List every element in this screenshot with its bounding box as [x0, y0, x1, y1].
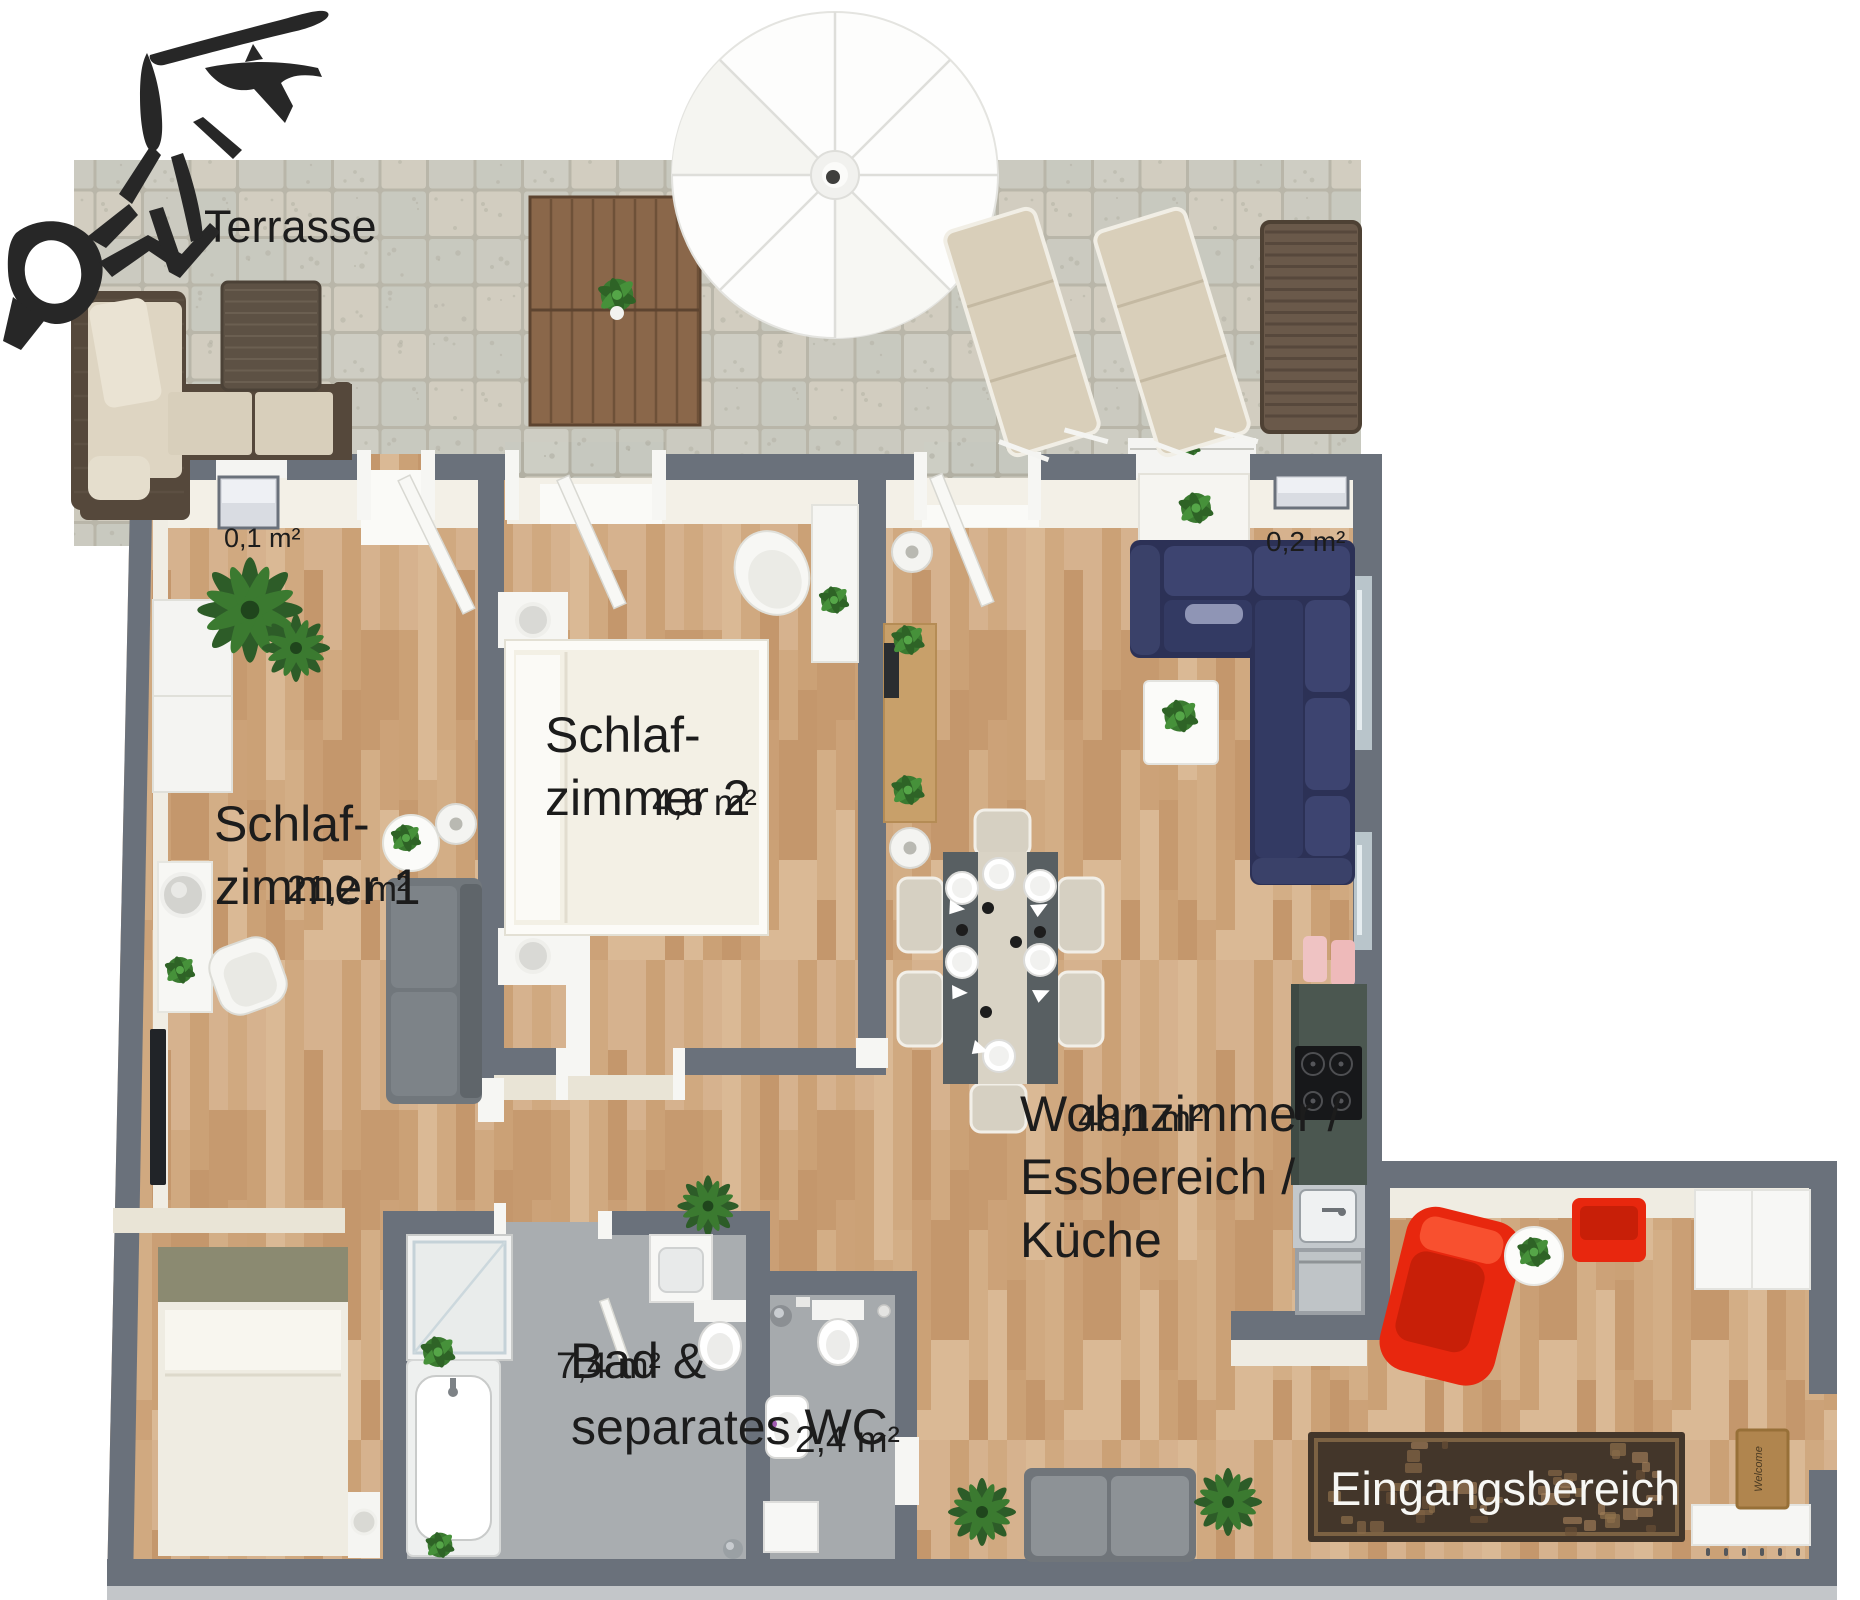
svg-text:Küche: Küche — [1020, 1212, 1162, 1268]
svg-text:Welcome: Welcome — [1753, 1446, 1765, 1492]
svg-text:2,4 m²: 2,4 m² — [795, 1419, 900, 1460]
svg-text:Schlaf-: Schlaf- — [214, 796, 370, 852]
svg-text:Bad &: Bad & — [570, 1333, 706, 1389]
svg-text:zimmer 2: zimmer 2 — [545, 770, 751, 826]
svg-text:Terrasse: Terrasse — [204, 201, 377, 252]
svg-text:zimmer 1: zimmer 1 — [215, 859, 421, 915]
svg-text:Essbereich /: Essbereich / — [1020, 1149, 1295, 1205]
svg-text:0,1 m²: 0,1 m² — [224, 523, 301, 553]
svg-text:Schlaf-: Schlaf- — [545, 707, 701, 763]
svg-text:Eingangsbereich: Eingangsbereich — [1330, 1462, 1680, 1515]
svg-text:0,2 m²: 0,2 m² — [1266, 526, 1345, 557]
svg-text:Wohnzimmer /: Wohnzimmer / — [1020, 1086, 1341, 1142]
